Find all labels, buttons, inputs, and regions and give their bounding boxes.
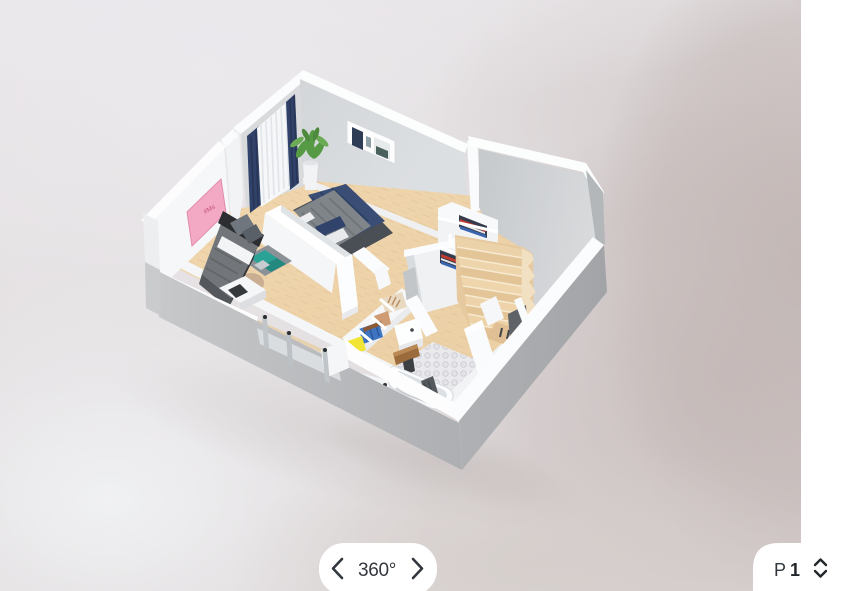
svg-text:1: 1 [790, 560, 800, 580]
svg-text:360°: 360° [358, 560, 396, 581]
svg-text:P: P [774, 560, 786, 580]
